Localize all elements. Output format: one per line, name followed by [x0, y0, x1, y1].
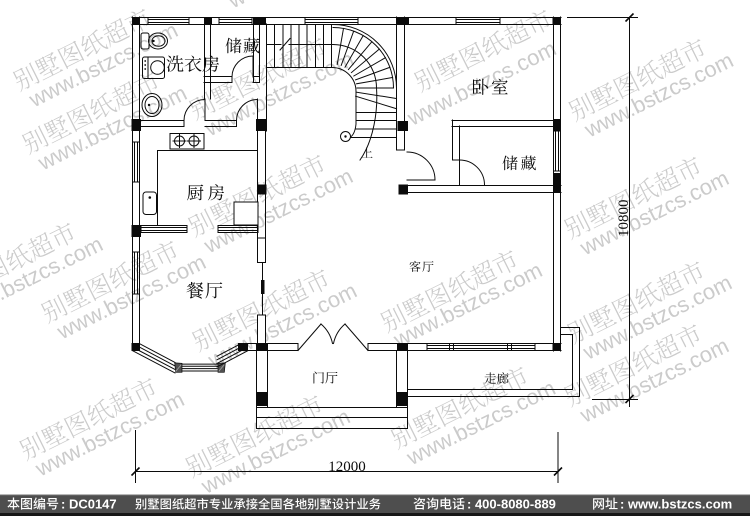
svg-text:12000: 12000 [328, 459, 366, 475]
svg-text:: DC0147: : DC0147 [61, 497, 117, 512]
svg-text:10800: 10800 [616, 200, 632, 238]
svg-text:: 400-8080-889: : 400-8080-889 [467, 497, 556, 512]
svg-text:: www.bstzcs.com: : www.bstzcs.com [620, 497, 732, 512]
